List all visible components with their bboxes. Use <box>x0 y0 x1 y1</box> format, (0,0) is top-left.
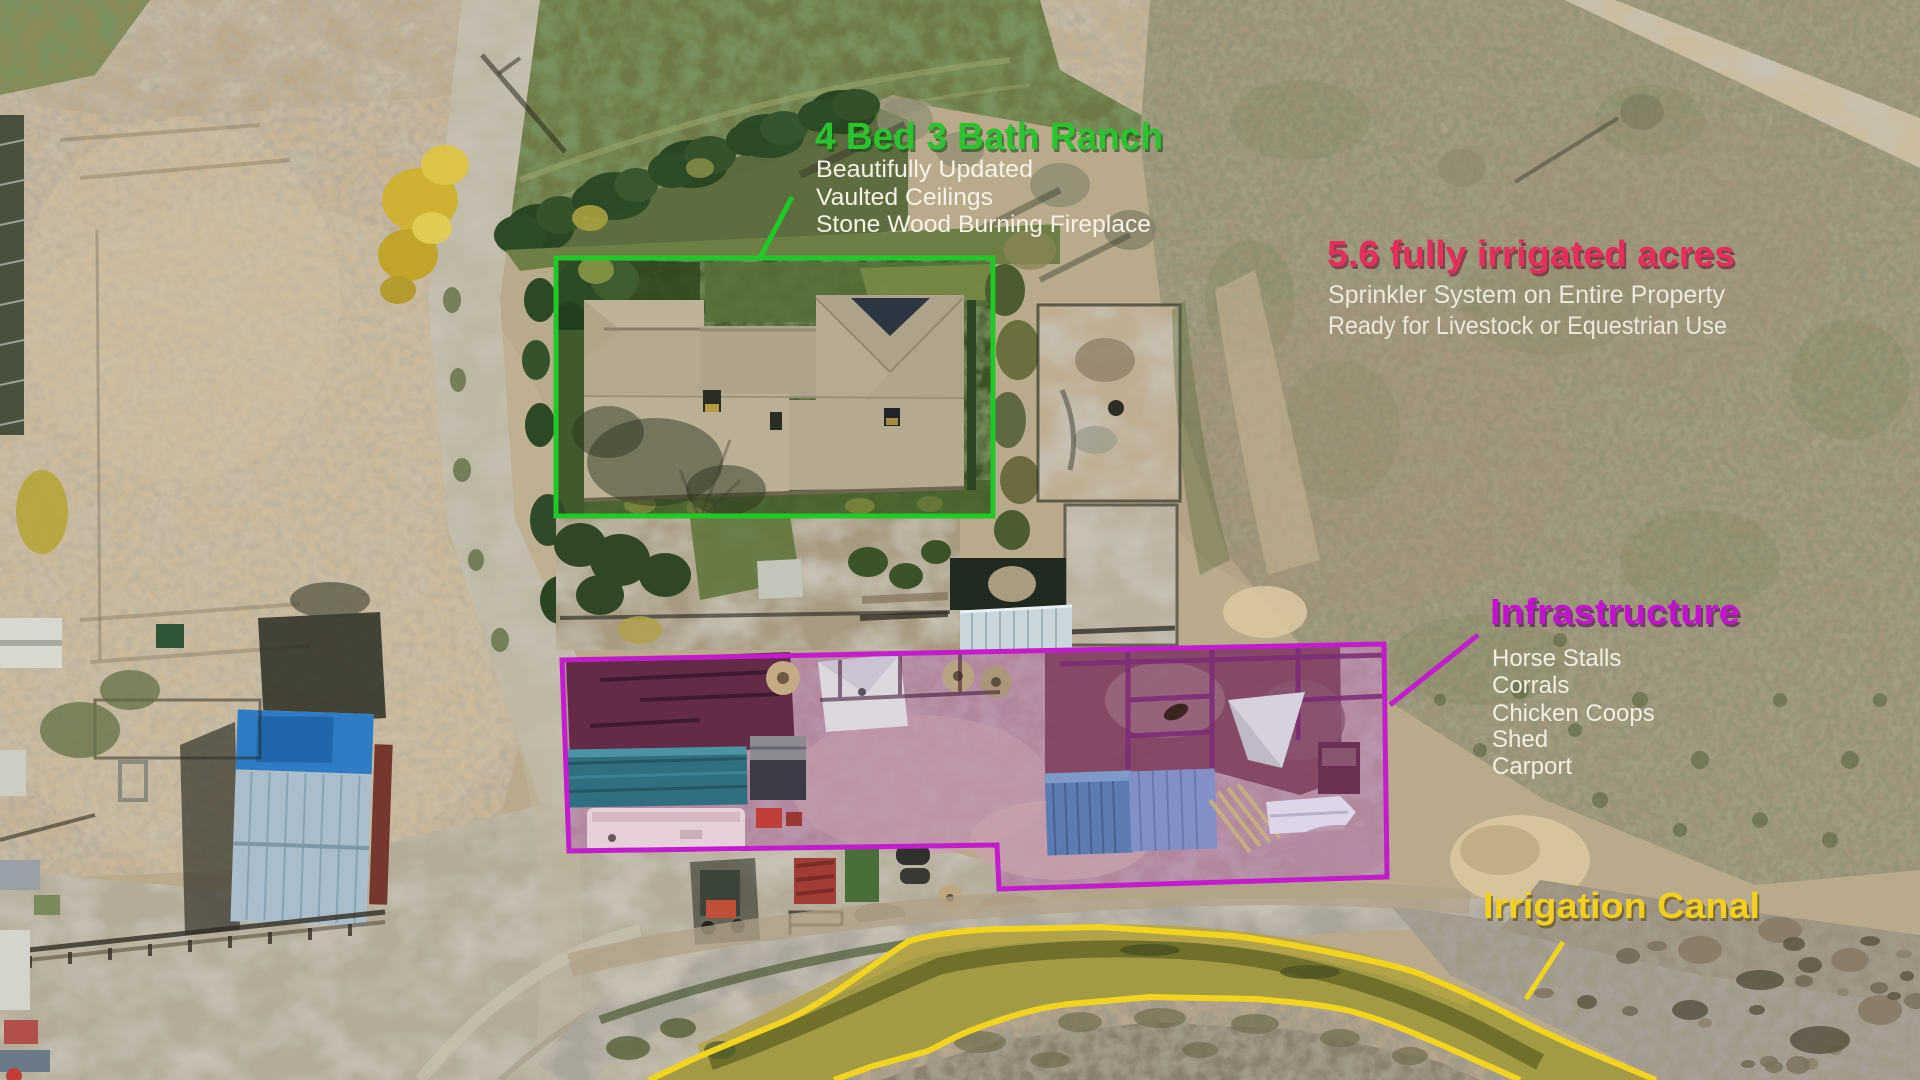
svg-text:Corrals: Corrals <box>1492 672 1569 699</box>
svg-text:Vaulted Ceilings: Vaulted Ceilings <box>816 184 993 211</box>
svg-text:Irrigation Canal: Irrigation Canal <box>1483 885 1760 926</box>
svg-text:Chicken Coops: Chicken Coops <box>1492 700 1655 727</box>
svg-text:4 Bed 3 Bath Ranch: 4 Bed 3 Bath Ranch <box>815 116 1163 158</box>
svg-text:Shed: Shed <box>1492 726 1548 753</box>
svg-text:5.6 fully irrigated acres: 5.6 fully irrigated acres <box>1327 233 1735 274</box>
svg-text:Carport: Carport <box>1492 753 1572 780</box>
svg-text:Sprinkler System on Entire Pro: Sprinkler System on Entire Property <box>1328 281 1725 309</box>
svg-text:Ready for Livestock or Equestr: Ready for Livestock or Equestrian Use <box>1328 312 1727 340</box>
svg-text:Horse Stalls: Horse Stalls <box>1492 645 1621 672</box>
svg-text:Stone Wood Burning Fireplace: Stone Wood Burning Fireplace <box>816 211 1151 238</box>
svg-text:Infrastructure: Infrastructure <box>1490 591 1740 632</box>
svg-text:Beautifully Updated: Beautifully Updated <box>816 156 1033 183</box>
